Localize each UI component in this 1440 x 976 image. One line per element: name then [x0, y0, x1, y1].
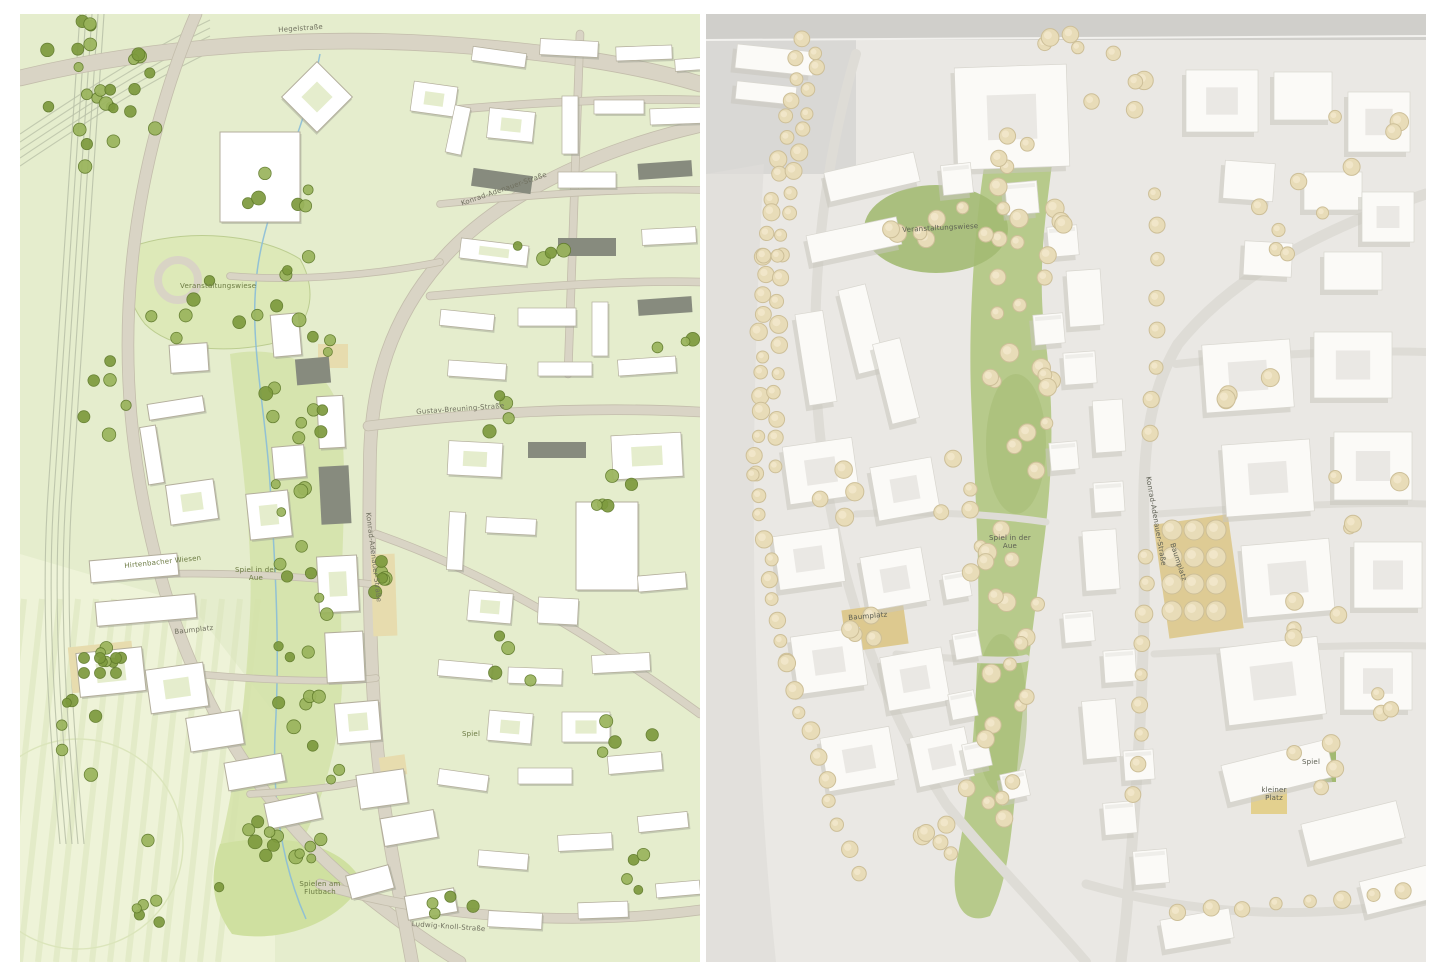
site-plan-map [20, 14, 700, 962]
model-photo-graphics [706, 14, 1426, 962]
site-plan-graphics [20, 14, 700, 962]
model-photo-panel: Veranstaltungswiese Konrad-Adenauer-Stra… [706, 14, 1426, 962]
model-photo-graphics-svg [706, 14, 1426, 962]
comparison-layout: Hegelstraße Konrad-Adenauer-Straße Gusta… [0, 0, 1440, 976]
site-plan-panel: Hegelstraße Konrad-Adenauer-Straße Gusta… [20, 14, 700, 962]
